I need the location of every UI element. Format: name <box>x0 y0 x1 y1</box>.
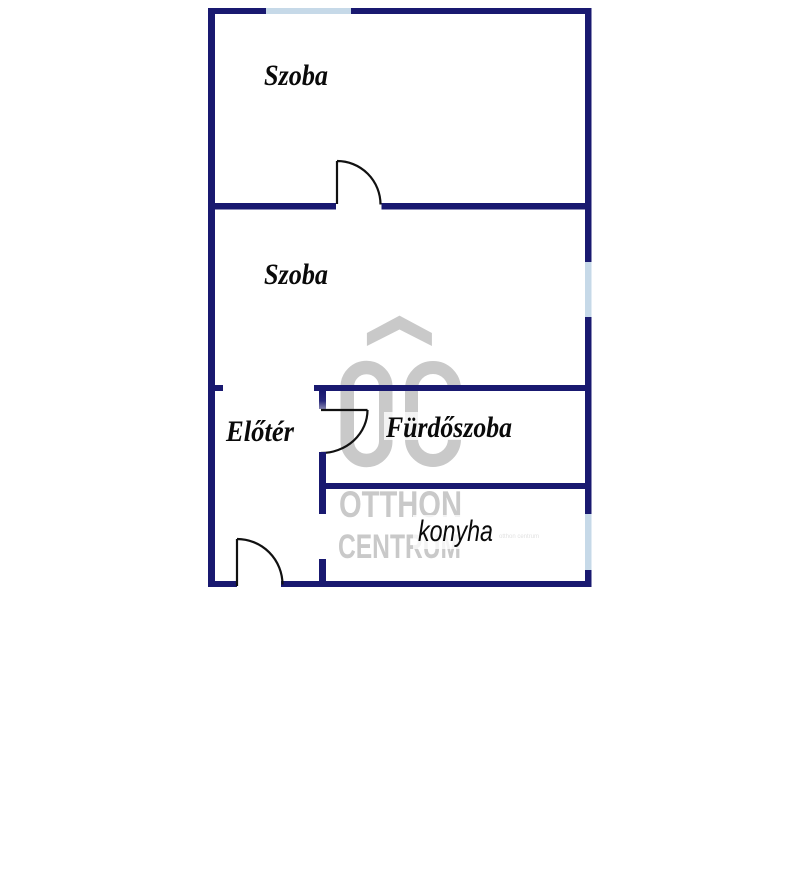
svg-text:otthon centrum: otthon centrum <box>499 534 539 540</box>
svg-text:Fürdőszoba: Fürdőszoba <box>385 411 512 444</box>
svg-text:Előtér: Előtér <box>225 415 294 448</box>
svg-text:Szoba: Szoba <box>264 258 328 291</box>
svg-text:konyha: konyha <box>418 515 493 548</box>
svg-text:Szoba: Szoba <box>264 59 328 92</box>
